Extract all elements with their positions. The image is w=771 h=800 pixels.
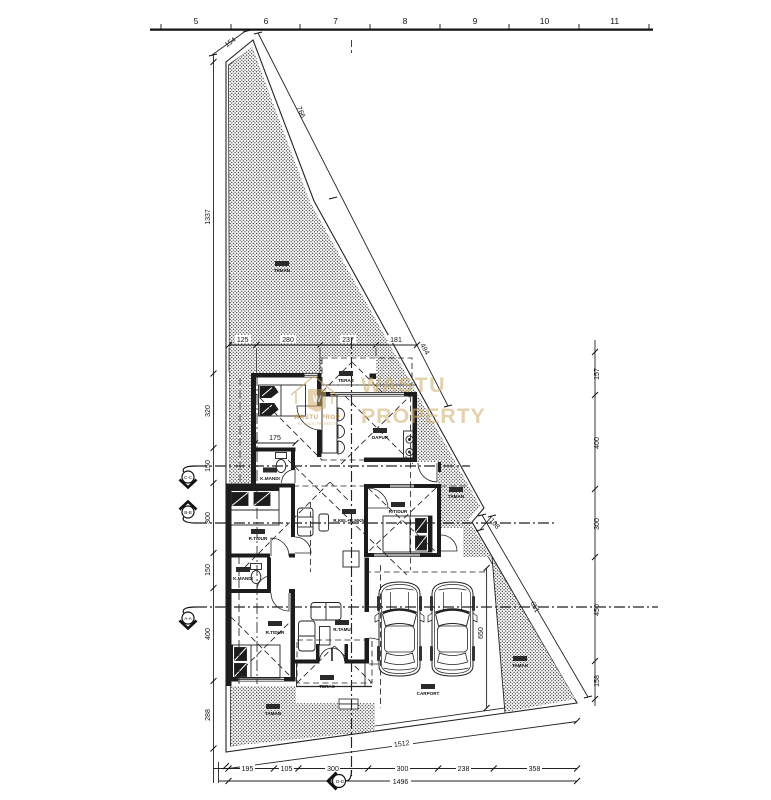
svg-text:105: 105	[281, 766, 293, 773]
svg-text:238: 238	[458, 766, 470, 773]
svg-text:R.KEL+R.MKN: R.KEL+R.MKN	[333, 518, 365, 523]
svg-text:5: 5	[194, 16, 199, 26]
svg-text:158: 158	[594, 675, 601, 687]
svg-text:C-C: C-C	[184, 475, 193, 480]
svg-text:DAPUR: DAPUR	[372, 435, 389, 440]
svg-text:9: 9	[473, 16, 478, 26]
svg-text:W: W	[313, 394, 322, 404]
svg-text:358: 358	[529, 766, 541, 773]
svg-text:288: 288	[205, 709, 212, 721]
svg-text:650: 650	[478, 627, 485, 639]
svg-text:D-D: D-D	[336, 779, 345, 784]
svg-text:1496: 1496	[393, 779, 409, 786]
svg-text:11: 11	[610, 16, 619, 26]
svg-text:195: 195	[242, 766, 254, 773]
svg-text:TAMAN: TAMAN	[448, 494, 465, 499]
svg-text:300: 300	[397, 766, 409, 773]
svg-text:TERAS: TERAS	[338, 378, 354, 383]
svg-text:7: 7	[333, 16, 338, 26]
svg-text:320: 320	[205, 405, 212, 417]
svg-text:280: 280	[282, 337, 294, 344]
svg-text:K.MANDI: K.MANDI	[233, 576, 253, 581]
svg-text:PROPERTY: PROPERTY	[361, 404, 486, 428]
svg-text:1337: 1337	[205, 209, 212, 225]
svg-text:WASTU PROP: WASTU PROP	[294, 414, 341, 421]
svg-text:R.TIDUR: R.TIDUR	[389, 509, 408, 514]
svg-text:400: 400	[594, 437, 601, 449]
svg-text:6: 6	[264, 16, 269, 26]
svg-text:TAMAN: TAMAN	[274, 268, 291, 273]
svg-text:400: 400	[205, 628, 212, 640]
svg-text:450: 450	[594, 604, 601, 616]
svg-text:237: 237	[342, 337, 354, 344]
svg-text:175: 175	[269, 435, 281, 442]
svg-text:R.TIDUR: R.TIDUR	[249, 536, 268, 541]
svg-text:157: 157	[594, 368, 601, 380]
svg-text:150: 150	[205, 564, 212, 576]
svg-text:R.TAMU: R.TAMU	[333, 627, 351, 632]
svg-text:300: 300	[594, 518, 601, 530]
svg-text:BY WASTU PROPERTY: BY WASTU PROPERTY	[298, 422, 337, 426]
svg-text:A-A: A-A	[184, 616, 192, 621]
svg-text:CARPORT: CARPORT	[417, 691, 440, 696]
svg-text:R.TIDUR: R.TIDUR	[266, 630, 285, 635]
svg-text:B-B: B-B	[184, 510, 192, 515]
svg-text:TAMAN: TAMAN	[512, 663, 529, 668]
svg-text:181: 181	[390, 337, 402, 344]
svg-text:TERAS: TERAS	[319, 684, 335, 689]
svg-text:125: 125	[237, 337, 249, 344]
svg-text:K.MANDI: K.MANDI	[260, 476, 280, 481]
svg-text:300: 300	[205, 512, 212, 524]
svg-text:8: 8	[403, 16, 408, 26]
svg-text:WASTU: WASTU	[361, 373, 446, 397]
svg-text:TAMAN: TAMAN	[265, 711, 282, 716]
svg-text:300: 300	[327, 766, 339, 773]
svg-text:10: 10	[540, 16, 550, 26]
